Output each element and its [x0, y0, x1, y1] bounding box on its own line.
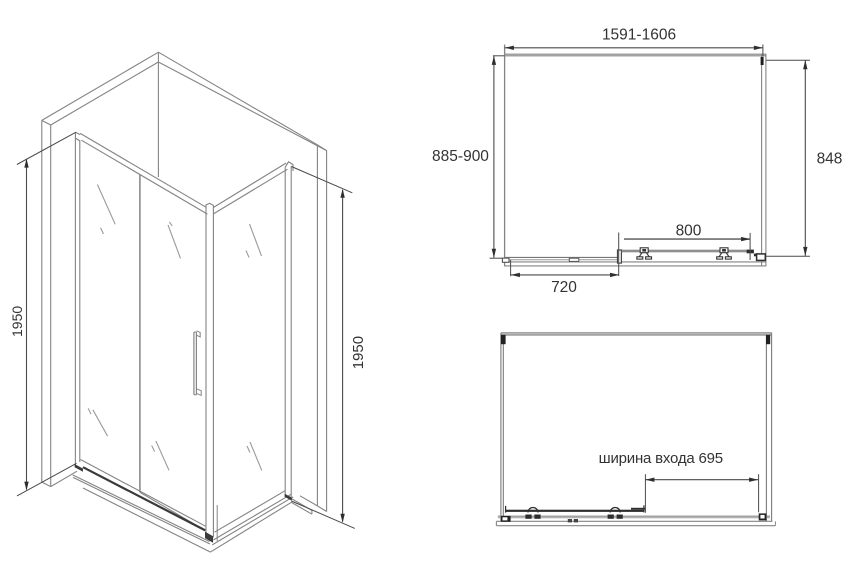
svg-text:ширина входа 695: ширина входа 695	[599, 450, 723, 467]
svg-text:1950: 1950	[9, 306, 25, 337]
svg-text:1950: 1950	[350, 336, 367, 369]
svg-text:848: 848	[817, 150, 843, 167]
svg-text:1591-1606: 1591-1606	[602, 26, 676, 43]
svg-text:720: 720	[551, 279, 577, 296]
svg-text:800: 800	[676, 223, 702, 240]
svg-text:885-900: 885-900	[432, 148, 489, 165]
